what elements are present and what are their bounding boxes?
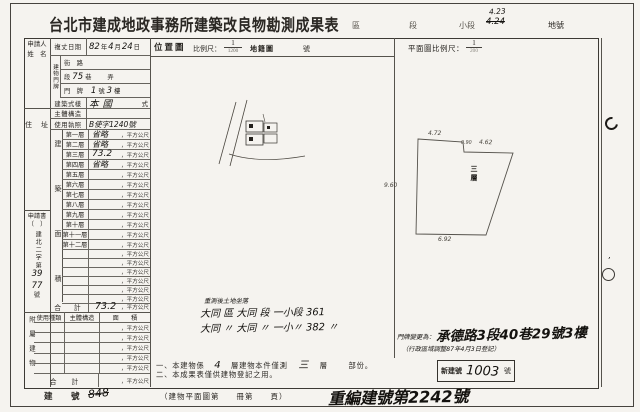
unit-label: ，平方公尺: [121, 344, 150, 352]
note1-part-d: 部份。: [349, 361, 373, 370]
renumber-hand: 重編建號第2242號: [328, 383, 469, 409]
floor-label: [62, 250, 89, 258]
form-title: 台北市建成地政事務所建築改良物勘測成果表: [49, 13, 339, 36]
floor-label: [62, 277, 89, 285]
plan-scale-fraction: 1 200: [466, 39, 482, 54]
annex-area-cell: ，平方公尺: [100, 354, 150, 363]
unit-label: ，平方公尺: [121, 259, 150, 267]
year-unit: 年: [101, 42, 107, 51]
door-floor-unit: 樓: [114, 86, 120, 95]
annex-area-cell: ，平方公尺: [100, 364, 150, 373]
grid-line: [24, 108, 50, 109]
floor-label: 第三層: [62, 150, 89, 159]
license-value: B使字1240號: [87, 119, 150, 130]
floor-value: ，平方公尺: [89, 240, 150, 249]
floor-value: ，平方公尺: [89, 210, 150, 219]
scale-denominator: 200: [466, 48, 482, 54]
annex-use-cell: [34, 323, 65, 332]
appdoc-line4: 號: [34, 292, 40, 300]
door-number-label: 門 牌: [64, 86, 83, 95]
parcel-number-bottom: 4.24: [486, 17, 505, 27]
grid-line: [24, 210, 50, 211]
plan-dim-left: 9.60: [384, 182, 397, 189]
annex-structure-cell: [65, 343, 100, 352]
table-row: ，平方公尺: [34, 354, 150, 364]
survey-year-hand: 82: [89, 42, 100, 52]
table-row: ，平方公尺: [62, 268, 150, 277]
unit-label: ，平方公尺: [121, 131, 150, 139]
parcel-number-top: 4.23: [489, 7, 506, 17]
floor-value: ，平方公尺: [89, 259, 150, 267]
unit-label: ，平方公尺: [121, 181, 150, 189]
scale-denominator: 1200: [224, 48, 242, 54]
unit-label: ，平方公尺: [121, 171, 150, 179]
unit-label: ，平方公尺: [121, 334, 150, 342]
unit-label: ，平方公尺: [121, 354, 150, 362]
license-hand: B使字1240號: [89, 119, 136, 130]
floor-value: ，平方公尺: [89, 200, 150, 209]
annex-structure-cell: [65, 364, 100, 373]
annex-use-cell: [34, 364, 65, 373]
subsection-label: 小段: [459, 20, 475, 31]
unit-label: ，平方公尺: [121, 221, 150, 229]
table-row: 第六層，平方公尺: [62, 180, 150, 190]
applicant-label-line1: 申請人: [24, 40, 50, 50]
table-row: 第五層，平方公尺: [62, 170, 150, 180]
unit-label: ，平方公尺: [121, 324, 150, 332]
info-rows: 複丈日期 82 年 4 月 24 日 建物門牌 街 路 段 75 巷 弄: [50, 38, 150, 130]
annex-area-cell: ，平方公尺: [100, 343, 150, 352]
segment-hand: 75: [72, 72, 83, 82]
unit-label: ，平方公尺: [121, 277, 150, 285]
scale-numerator: 1: [466, 39, 482, 48]
floor-area-table: 第一層省略，平方公尺 第二層省略，平方公尺 第三層73.2，平方公尺 第四層省略…: [50, 130, 150, 302]
month-unit: 月: [115, 42, 121, 51]
annex-structure-cell: [65, 323, 100, 332]
unit-label: ，平方公尺: [121, 191, 150, 199]
floor-label: 第二層: [62, 140, 89, 149]
note1-hand-floor: 三: [298, 360, 309, 371]
location-sketch: [215, 98, 315, 170]
applicant-name-label: 申請人 姓 名: [24, 40, 50, 59]
plan-book-reference: （建物平面圖第 冊第 頁）: [160, 391, 288, 402]
table-row: ，平方公尺: [62, 259, 150, 268]
note1-part-b: 層建物本件僅測: [231, 361, 288, 370]
unit-label: ，平方公尺: [121, 211, 150, 219]
floor-value: ，平方公尺: [89, 170, 150, 179]
section-label: 段: [409, 20, 417, 31]
appdoc-line2: （ ）: [28, 221, 47, 229]
appdoc-line3: 建北二字第: [33, 231, 41, 270]
table-row: ，平方公尺: [34, 343, 150, 353]
structure-row: 主體構造: [50, 109, 150, 119]
unit-label: ，平方公尺: [121, 151, 150, 159]
location-scale-fraction: 1 1200: [224, 39, 242, 54]
district-label: 區: [352, 20, 360, 31]
unit-label: ，平方公尺: [121, 231, 150, 239]
punch-hole-icon: [602, 268, 615, 281]
grid-line: [394, 38, 395, 358]
new-number-hand: 1003: [466, 363, 500, 380]
doorchange-prefix: 門牌變更為：: [397, 332, 435, 341]
table-row: 第九層，平方公尺: [62, 210, 150, 220]
building-style-hand: 本國: [89, 96, 116, 110]
street-row: 街 路: [61, 56, 150, 70]
table-row: 第十二層，平方公尺: [62, 240, 150, 250]
parcel-label: 地號: [548, 20, 564, 31]
floor-label: [62, 268, 89, 276]
floor-label: [62, 259, 89, 267]
scanned-survey-form: 台北市建成地政事務所建築改良物勘測成果表 區 段 小段 4.23 4.24 地號…: [0, 0, 640, 412]
building-number-label: 建 號: [44, 390, 85, 402]
table-row: ，平方公尺: [62, 250, 150, 259]
annex-total-row: 合 計 ，平方公尺: [34, 374, 150, 387]
floor-value: 73.2，平方公尺: [89, 150, 150, 159]
doorchange-address: 承德路3段40巷29號3樓: [436, 321, 587, 345]
grid-line: [150, 56, 394, 57]
floor-value: 省略，平方公尺: [89, 160, 150, 169]
floor-value: 省略，平方公尺: [89, 130, 150, 139]
doorplate-rows: 街 路 段 75 巷 弄 門 牌 1 號 3 樓: [61, 56, 150, 98]
floor-hand-value: 省略: [92, 159, 108, 170]
resurvey-line2: 大同 〃 大同 〃 一小〃 382 〃: [200, 318, 338, 335]
annex-structure-cell: [65, 354, 100, 363]
street-label: 街 路: [64, 58, 83, 67]
floor-value: 省略，平方公尺: [89, 140, 150, 149]
unit-label: ，平方公尺: [121, 303, 150, 311]
table-row: 第十層，平方公尺: [62, 220, 150, 230]
unit-label: ，平方公尺: [121, 241, 150, 249]
day-unit: 日: [134, 42, 140, 51]
door-number-hand: 1: [91, 86, 96, 96]
plan-scale-label: 平面圖比例尺：: [408, 43, 464, 54]
note-2: 二、本成果表僅供建物登記之用。: [156, 370, 277, 380]
plan-dim-bottom: 6.92: [438, 236, 451, 243]
unit-label: ，平方公尺: [121, 161, 150, 169]
door-number-unit: 號: [98, 86, 104, 95]
annex-structure-cell: [65, 333, 100, 342]
unit-label: ，平方公尺: [121, 268, 150, 276]
floor-label: 第六層: [62, 180, 89, 189]
new-number-label: 新建號: [441, 366, 462, 376]
floor-label: 第十一層: [62, 230, 89, 239]
plan-dim-step: 0.90: [461, 141, 472, 146]
segment-row: 段 75 巷 弄: [61, 70, 150, 84]
lane-label: 巷: [85, 72, 91, 81]
annex-area-header: 面 積: [100, 312, 150, 322]
annex-area-cell: ，平方公尺: [100, 333, 150, 342]
license-label: 使用執照: [50, 119, 87, 129]
table-row: ，平方公尺: [62, 286, 150, 295]
resurvey-line1: 大同 區 大同 段 一小段 361: [200, 303, 325, 320]
floor-value: ，平方公尺: [89, 220, 150, 229]
floor-label: 第五層: [62, 170, 89, 179]
plan-dim-top: 4.72: [428, 130, 441, 137]
building-style-label: 建築式樣: [50, 98, 87, 108]
annex-area-cell: ，平方公尺: [100, 323, 150, 332]
table-row: ，平方公尺: [62, 277, 150, 286]
table-row: ，平方公尺: [34, 364, 150, 374]
right-double-line: [601, 38, 602, 387]
survey-date-label: 複丈日期: [50, 38, 87, 55]
building-number-hand: 848: [87, 386, 109, 401]
applicant-label-line2: 姓 名: [24, 50, 50, 60]
annex-total-label: 合 計: [34, 374, 99, 387]
appdoc-number-hand-1: 39: [32, 269, 43, 280]
survey-day-hand: 24: [122, 42, 133, 52]
unit-label: ，平方公尺: [121, 364, 150, 372]
segment-label: 段: [64, 72, 70, 81]
grid-line: [150, 38, 151, 387]
total-hand-value: 73.2: [95, 301, 116, 312]
unit-label: ，平方公尺: [121, 377, 150, 385]
appdoc-number-hand-2: 77: [32, 281, 43, 292]
unit-label: ，平方公尺: [121, 250, 150, 258]
floor-label: [62, 286, 89, 294]
doorchange-note: （行政區域調整87年4月3日登記）: [402, 344, 500, 353]
table-row: 第十一層，平方公尺: [62, 230, 150, 240]
floor-value: ，平方公尺: [89, 230, 150, 239]
building-style-suffix: 式: [142, 99, 150, 108]
annex-use-header: 使用種類: [34, 312, 65, 322]
floor-value: ，平方公尺: [89, 268, 150, 276]
floor-total-row: 合 計 73.2 ，平方公尺: [50, 302, 150, 312]
location-scale-label: 比例尺：: [193, 44, 221, 54]
table-row: ，平方公尺: [34, 323, 150, 333]
floor-value: ，平方公尺: [89, 190, 150, 199]
floor-value: ，平方公尺: [89, 286, 150, 294]
unit-label: ，平方公尺: [121, 286, 150, 294]
note1-part-a: 一、本建物係: [156, 361, 205, 370]
scale-numerator: 1: [224, 39, 242, 48]
annex-structure-header: 主體構造: [65, 312, 100, 322]
floor-plan-drawing: [398, 116, 538, 256]
location-map-title: 位置圖: [154, 41, 186, 53]
doorplate-group: 建物門牌 街 路 段 75 巷 弄 門 牌 1 號 3 樓: [50, 56, 150, 98]
plan-dim-top-right: 4.62: [479, 139, 493, 146]
floor-hand-value: 73.2: [92, 149, 112, 159]
survey-month-hand: 4: [108, 42, 113, 52]
ink-mark: ʼ: [608, 256, 611, 265]
table-row: 第七層，平方公尺: [62, 190, 150, 200]
plan-floor-label: 三層: [469, 165, 479, 183]
note1-part-c: 層: [320, 361, 328, 370]
table-row: 第八層，平方公尺: [62, 200, 150, 210]
total-label: 合 計: [50, 302, 89, 312]
building-style-value: 本國 式: [87, 96, 150, 110]
floor-label: 第十層: [62, 220, 89, 229]
floor-label: 第七層: [62, 190, 89, 199]
appdoc-line1: 申請書: [28, 213, 47, 221]
annex-use-cell: [34, 354, 65, 363]
door-floor-hand: 3: [107, 86, 112, 96]
floor-label: 第八層: [62, 200, 89, 209]
floor-label: 第四層: [62, 160, 89, 169]
annex-header-row: 使用種類 主體構造 面 積: [34, 312, 150, 323]
floor-value: ，平方公尺: [89, 277, 150, 285]
application-doc-number: 申請書 （ ） 建北二字第 39 77 號: [24, 213, 50, 301]
doorplate-group-label: 建物門牌: [50, 56, 61, 98]
unit-label: ，平方公尺: [121, 141, 150, 149]
building-style-row: 建築式樣 本國 式: [50, 98, 150, 109]
alley-label: 弄: [107, 72, 113, 81]
annex-use-cell: [34, 333, 65, 342]
note-1: 一、本建物係 4 層建物本件僅測 三 層 部份。: [156, 356, 373, 371]
floor-value: ，平方公尺: [89, 250, 150, 258]
floor-value: ，平方公尺: [89, 180, 150, 189]
survey-date-value: 82 年 4 月 24 日: [87, 42, 150, 52]
new-number-suffix: 號: [504, 366, 511, 376]
floor-label: 第一層: [62, 130, 89, 139]
total-value: 73.2 ，平方公尺: [89, 302, 150, 312]
annex-building-table: 使用種類 主體構造 面 積 ，平方公尺 ，平方公尺 ，平方公尺 ，平方公尺 ，平…: [34, 312, 150, 387]
structure-label: 主體構造: [50, 109, 87, 118]
floor-label: 第十二層: [62, 240, 89, 249]
unit-label: ，平方公尺: [121, 201, 150, 209]
floor-label: 第九層: [62, 210, 89, 219]
new-number-box: 新建號 1003 號: [437, 360, 515, 382]
survey-date-row: 複丈日期 82 年 4 月 24 日: [50, 38, 150, 56]
address-label: 住 址: [24, 120, 50, 130]
table-row: 第四層省略，平方公尺: [62, 160, 150, 170]
table-row: ，平方公尺: [34, 333, 150, 343]
cadastral-map-label: 地籍圖: [250, 44, 274, 54]
annex-use-cell: [34, 343, 65, 352]
cadastral-no-label: 號: [303, 44, 310, 54]
